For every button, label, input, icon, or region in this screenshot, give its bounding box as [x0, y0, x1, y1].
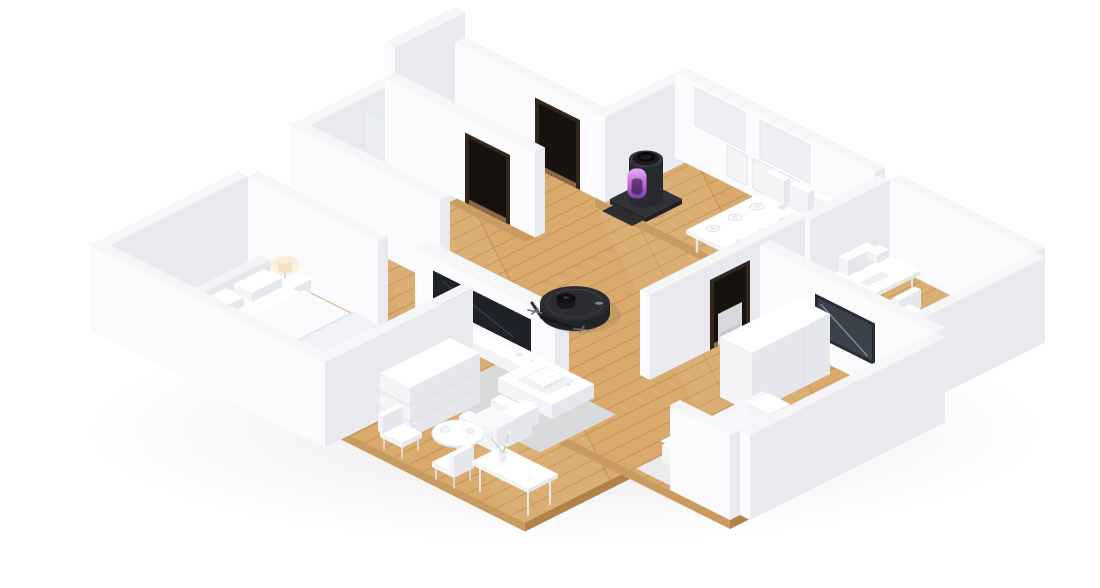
apartment-3d-render [0, 0, 1100, 588]
floorplan-canvas [0, 0, 1100, 588]
